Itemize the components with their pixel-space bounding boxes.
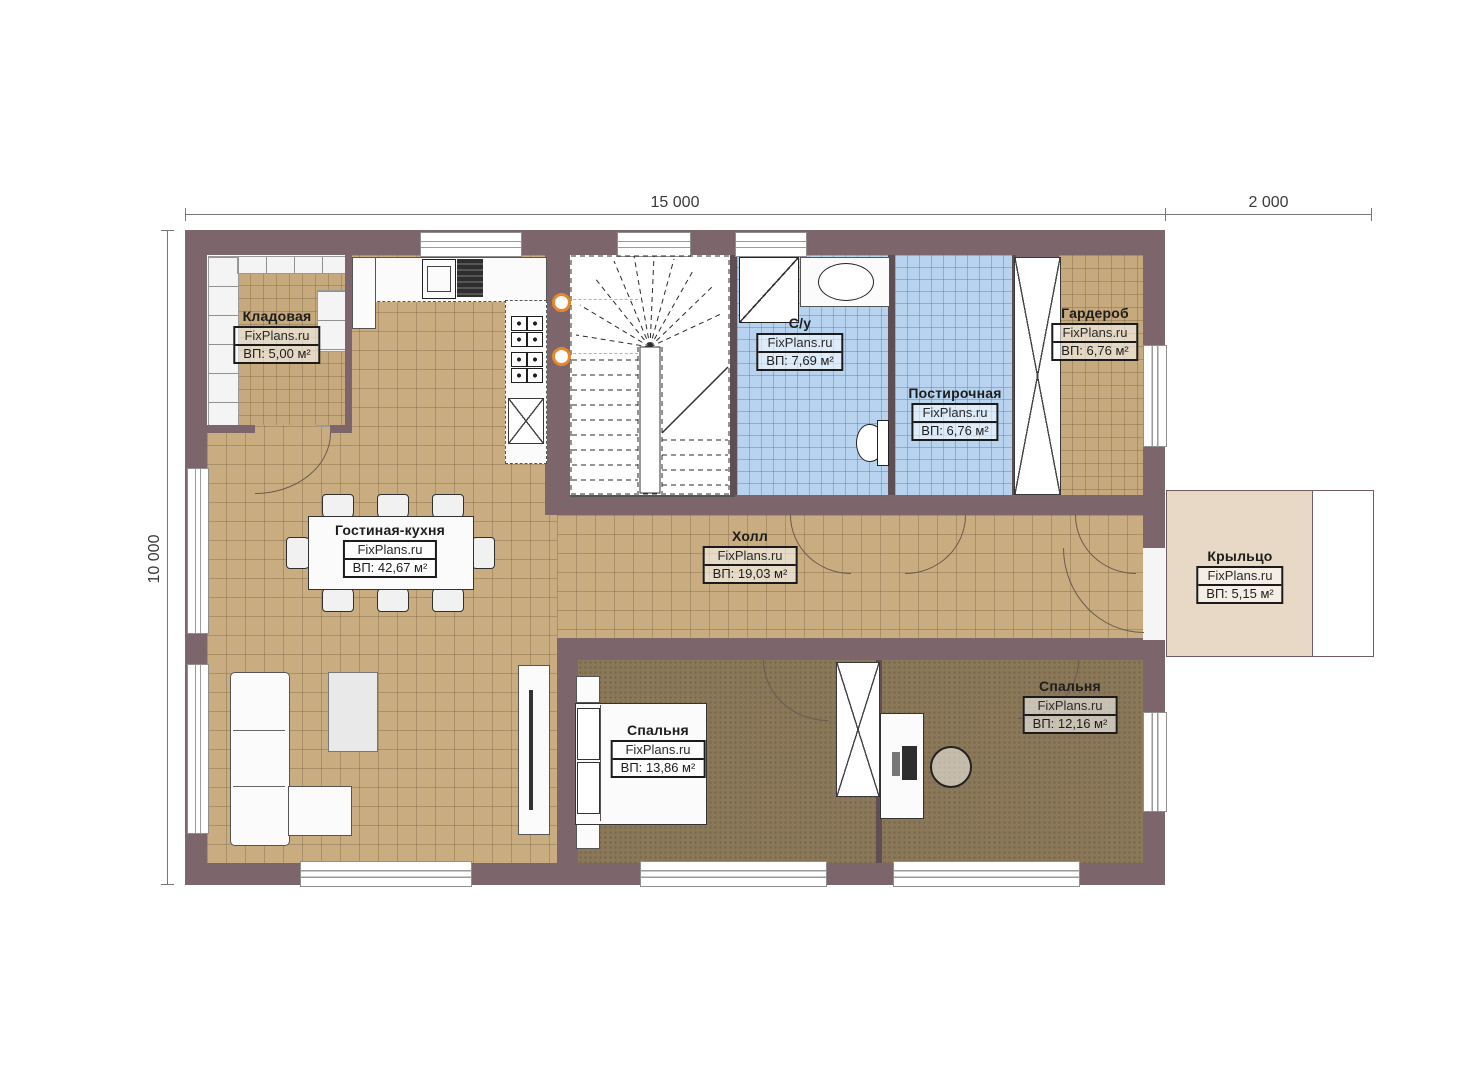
wall-segment xyxy=(1135,495,1143,515)
room-name: Спальня xyxy=(1039,678,1101,694)
kitchen-oven xyxy=(457,259,483,297)
room-label-living: Гостиная-кухня FixPlans.ru ВП: 42,67 м² xyxy=(335,522,445,578)
cooktop-burner xyxy=(527,368,543,383)
room-name: С/у xyxy=(789,315,811,331)
room-name: Холл xyxy=(732,528,768,544)
watermark: FixPlans.ru xyxy=(235,328,318,346)
staircase xyxy=(570,255,730,495)
room-area: ВП: 12,16 м² xyxy=(1025,716,1116,732)
wall-partition xyxy=(730,255,737,495)
watermark: FixPlans.ru xyxy=(1198,568,1281,586)
room-area: ВП: 5,00 м² xyxy=(235,346,318,362)
room-name: Гостиная-кухня xyxy=(335,522,445,538)
dimension-line-top-main xyxy=(185,214,1165,215)
entrance-door-gap xyxy=(1143,548,1165,640)
sink-bowl xyxy=(427,266,451,292)
dimension-line-left xyxy=(167,230,168,885)
tv xyxy=(529,690,533,810)
room-area: ВП: 6,76 м² xyxy=(1053,343,1136,359)
room-label-bathroom: С/у FixPlans.ru ВП: 7,69 м² xyxy=(756,315,843,371)
sofa-cushion-line xyxy=(233,730,285,731)
dimension-tick xyxy=(161,230,174,231)
room-area: ВП: 19,03 м² xyxy=(705,566,796,582)
light-projection-line xyxy=(568,353,638,354)
cooktop-burner xyxy=(527,352,543,367)
room-floor-wardrobe xyxy=(1059,255,1143,495)
room-label-laundry: Постирочная FixPlans.ru ВП: 6,76 м² xyxy=(908,385,1001,441)
room-label-wardrobe: Гардероб FixPlans.ru ВП: 6,76 м² xyxy=(1051,305,1138,361)
window xyxy=(893,861,1080,887)
pantry-shelves xyxy=(317,290,346,352)
nightstand xyxy=(576,822,600,849)
pantry-shelves xyxy=(237,256,346,274)
kitchen-cabinet-x xyxy=(508,398,544,444)
room-label-porch: Крыльцо FixPlans.ru ВП: 5,15 м² xyxy=(1196,548,1283,604)
porch-step xyxy=(1312,490,1374,657)
floor-plan-page: { "watermark": "FixPlans.ru", "dimension… xyxy=(0,0,1473,1080)
wall-partition xyxy=(345,255,352,433)
shower xyxy=(739,257,799,323)
window xyxy=(420,232,522,257)
window xyxy=(1143,712,1167,812)
stair-edge-line xyxy=(570,495,735,497)
room-area: ВП: 5,15 м² xyxy=(1198,586,1281,602)
window xyxy=(1143,345,1167,447)
watermark: FixPlans.ru xyxy=(1025,698,1116,716)
room-label-pantry: Кладовая FixPlans.ru ВП: 5,00 м² xyxy=(233,308,320,364)
coffee-table xyxy=(328,672,378,752)
room-floor-laundry xyxy=(895,255,1014,495)
pillow xyxy=(577,708,600,760)
cooktop-burner xyxy=(511,332,527,347)
cooktop-burner xyxy=(511,368,527,383)
wall-light-icon xyxy=(552,347,571,366)
computer-keyboard xyxy=(892,752,900,776)
wall-segment xyxy=(827,638,1018,660)
wardrobe-unit-x xyxy=(1014,257,1061,495)
window xyxy=(640,861,827,887)
sofa-cushion-line xyxy=(233,786,285,787)
room-label-bedroom1: Спальня FixPlans.ru ВП: 13,86 м² xyxy=(611,722,706,778)
window xyxy=(187,468,209,634)
wall-segment xyxy=(557,638,763,660)
room-name: Крыльцо xyxy=(1207,548,1272,564)
room-area: ВП: 42,67 м² xyxy=(345,560,436,576)
wall-segment xyxy=(735,495,790,515)
sofa xyxy=(230,672,290,846)
bed-line xyxy=(600,705,601,821)
dimension-label-top-right: 2 000 xyxy=(1165,194,1372,212)
wall-segment xyxy=(207,425,255,433)
room-name: Гардероб xyxy=(1061,305,1129,321)
room-area: ВП: 13,86 м² xyxy=(613,760,704,776)
room-label-bedroom2: Спальня FixPlans.ru ВП: 12,16 м² xyxy=(1023,678,1118,734)
wardrobe-unit-x xyxy=(836,662,880,797)
cooktop-burner xyxy=(511,316,527,331)
computer-monitor xyxy=(902,746,917,780)
tv-stand xyxy=(518,665,550,835)
watermark: FixPlans.ru xyxy=(758,335,841,353)
cooktop-burner xyxy=(511,352,527,367)
watermark: FixPlans.ru xyxy=(345,542,436,560)
cooktop-burner xyxy=(527,332,543,347)
window xyxy=(300,861,472,887)
wall-segment xyxy=(965,495,1075,515)
dimension-line-top-right xyxy=(1165,214,1372,215)
room-name: Кладовая xyxy=(243,308,312,324)
dimension-label-top-main: 15 000 xyxy=(185,194,1165,212)
cooktop-burner xyxy=(527,316,543,331)
watermark: FixPlans.ru xyxy=(1053,325,1136,343)
dimension-tick xyxy=(161,884,174,885)
window xyxy=(735,232,807,257)
watermark: FixPlans.ru xyxy=(705,548,796,566)
window xyxy=(187,664,209,834)
washbasin xyxy=(818,263,874,301)
dimension-label-left: 10 000 xyxy=(146,514,164,604)
pillow xyxy=(577,762,600,814)
light-projection-line xyxy=(568,299,638,300)
wall-segment xyxy=(850,495,905,515)
watermark: FixPlans.ru xyxy=(613,742,704,760)
window xyxy=(617,232,691,257)
toilet-tank xyxy=(877,420,889,466)
room-name: Постирочная xyxy=(908,385,1001,401)
kitchen-tall-cabinet xyxy=(352,257,376,329)
room-area: ВП: 6,76 м² xyxy=(913,423,996,439)
nightstand xyxy=(576,676,600,703)
room-name: Спальня xyxy=(627,722,689,738)
room-area: ВП: 7,69 м² xyxy=(758,353,841,369)
room-label-hall: Холл FixPlans.ru ВП: 19,03 м² xyxy=(703,528,798,584)
office-chair xyxy=(930,746,972,788)
watermark: FixPlans.ru xyxy=(913,405,996,423)
wall-light-icon xyxy=(552,293,571,312)
sofa-chaise xyxy=(288,786,352,836)
wall-segment xyxy=(1078,638,1143,660)
